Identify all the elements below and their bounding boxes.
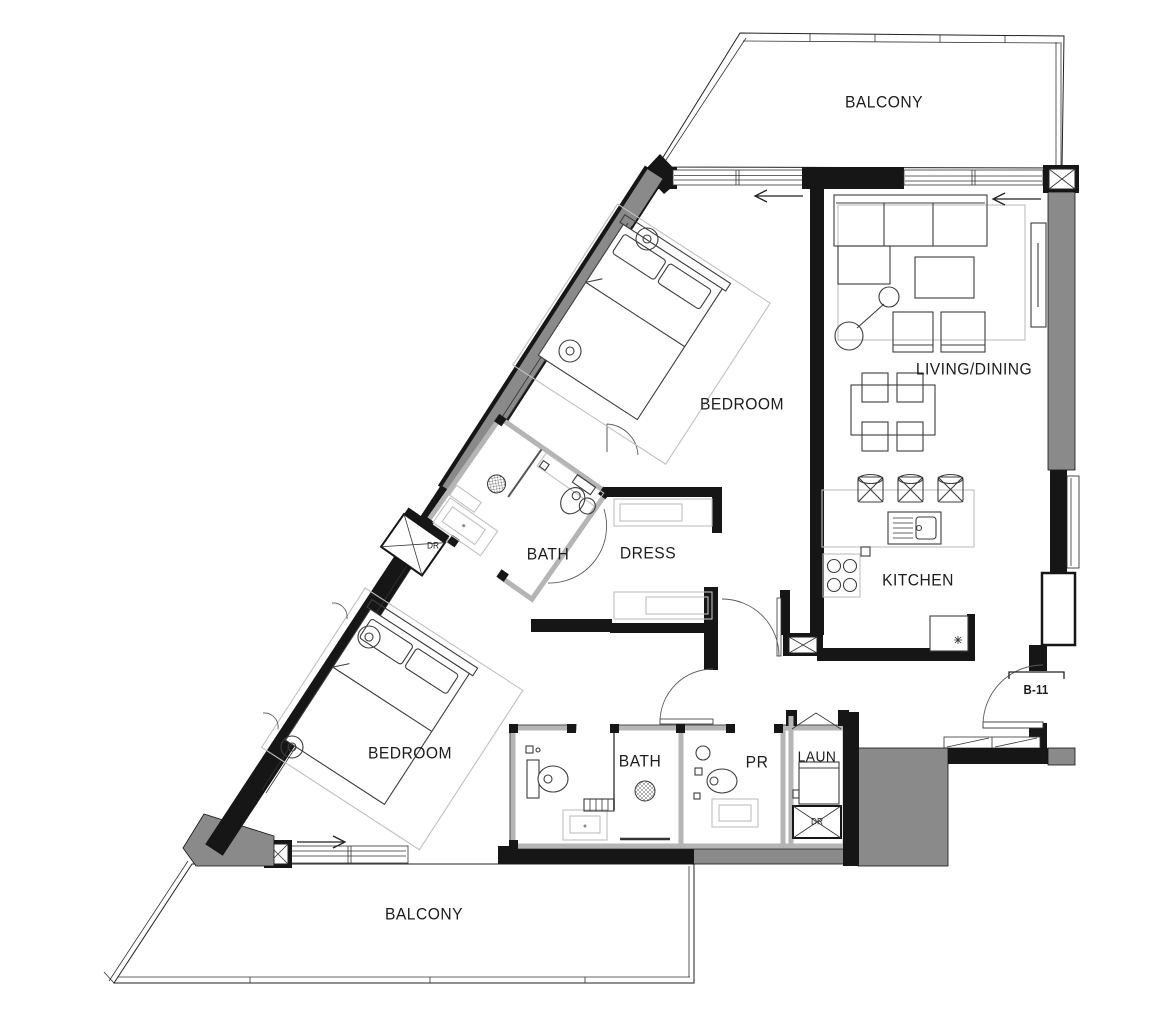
room-label-bedroom-bottom: BEDROOM [368, 745, 452, 762]
room-label-dress: DRESS [620, 545, 676, 562]
room-label-balcony-bottom: BALCONY [385, 906, 463, 923]
toilet-icon [538, 766, 568, 792]
room-label-laundry: LAUN [798, 750, 837, 765]
room-label-bedroom-top: BEDROOM [700, 396, 784, 413]
room-label-bath-top: BATH [527, 546, 569, 563]
bath-bottom-block [509, 710, 859, 866]
room-label-living-dining: LIVING/DINING [916, 361, 1032, 378]
room-label-bath-bottom: BATH [619, 753, 661, 770]
room-label-powder-room: PR [746, 754, 769, 771]
dryer-label-upper: DR [427, 542, 439, 551]
dryer-label-lower: DR [811, 818, 823, 827]
fridge-icon [930, 616, 968, 651]
floor-plan: BALCONY LIVING/DINING BEDROOM BATH DRESS… [0, 0, 1168, 1014]
unit-number-label: B-11 [1023, 684, 1048, 697]
shower-drain-icon [635, 781, 655, 801]
floor-plan-drawing [0, 0, 1168, 1014]
room-label-balcony-top: BALCONY [845, 94, 923, 111]
toilet-icon [707, 769, 737, 793]
room-label-kitchen: KITCHEN [882, 572, 954, 589]
